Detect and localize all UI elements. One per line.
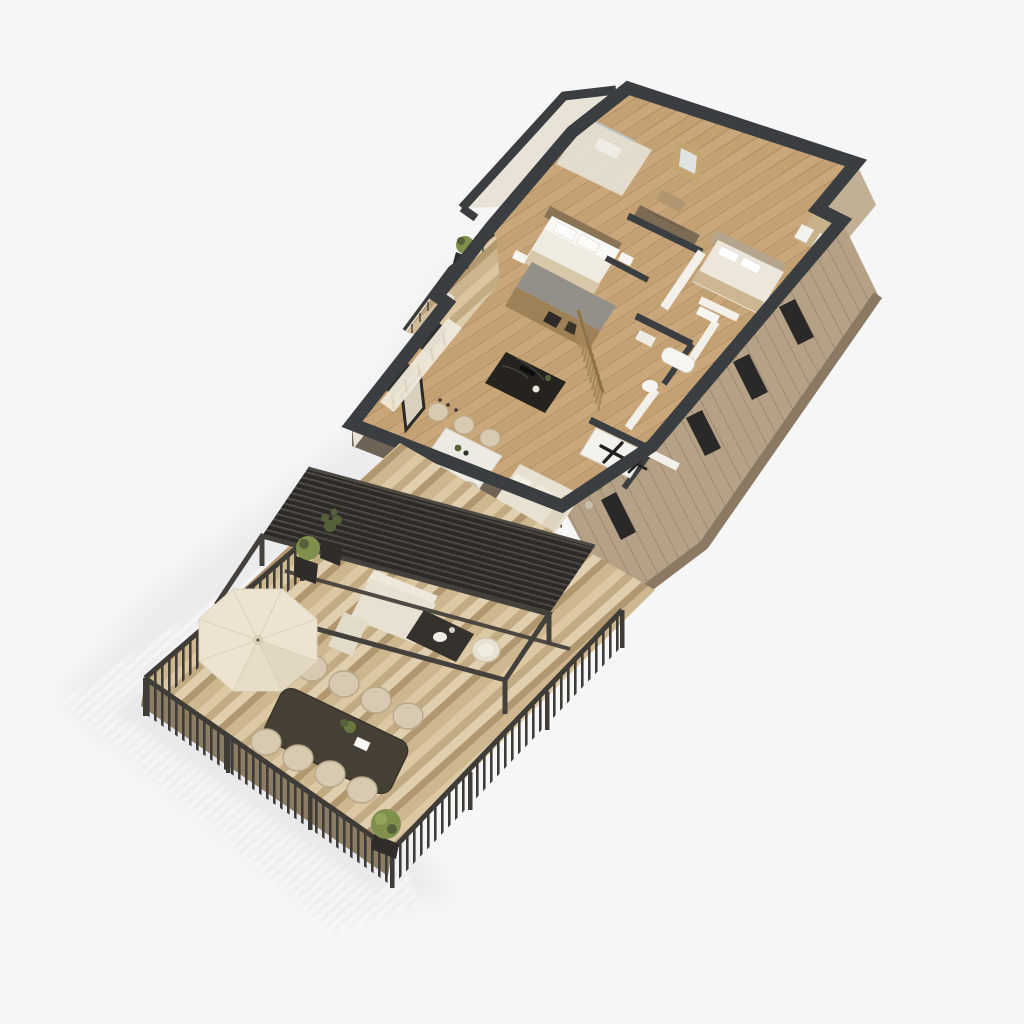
boxwood-ball xyxy=(296,536,320,560)
topiary-ball xyxy=(371,809,401,839)
outdoor-chair xyxy=(251,729,281,755)
armchair-cushion xyxy=(478,644,494,657)
bowl xyxy=(533,386,540,393)
boxwood-shade xyxy=(299,539,309,549)
outdoor-chair xyxy=(393,703,423,729)
dining-chair xyxy=(480,429,500,447)
parasol xyxy=(199,589,317,691)
vase xyxy=(449,627,455,633)
parasol-pole xyxy=(256,638,260,642)
outdoor-chair xyxy=(315,761,345,787)
outdoor-chair xyxy=(329,671,359,697)
dining-chair xyxy=(454,416,474,434)
tray xyxy=(433,632,447,642)
isometric-floorplan-svg xyxy=(0,0,1024,1024)
topiary-highlight xyxy=(375,813,387,825)
outdoor-chair xyxy=(347,777,377,803)
balcony-plant-shade xyxy=(457,237,465,245)
floorplan-render-image xyxy=(0,0,1024,1024)
topiary-shade xyxy=(387,824,397,834)
side-table xyxy=(585,501,593,509)
table-vase xyxy=(463,450,468,455)
dining-chair xyxy=(428,403,448,421)
outdoor-chair xyxy=(361,687,391,713)
table-vase xyxy=(455,445,462,452)
island-plant xyxy=(545,375,551,381)
toilet xyxy=(642,380,658,392)
outdoor-chair xyxy=(283,745,313,771)
